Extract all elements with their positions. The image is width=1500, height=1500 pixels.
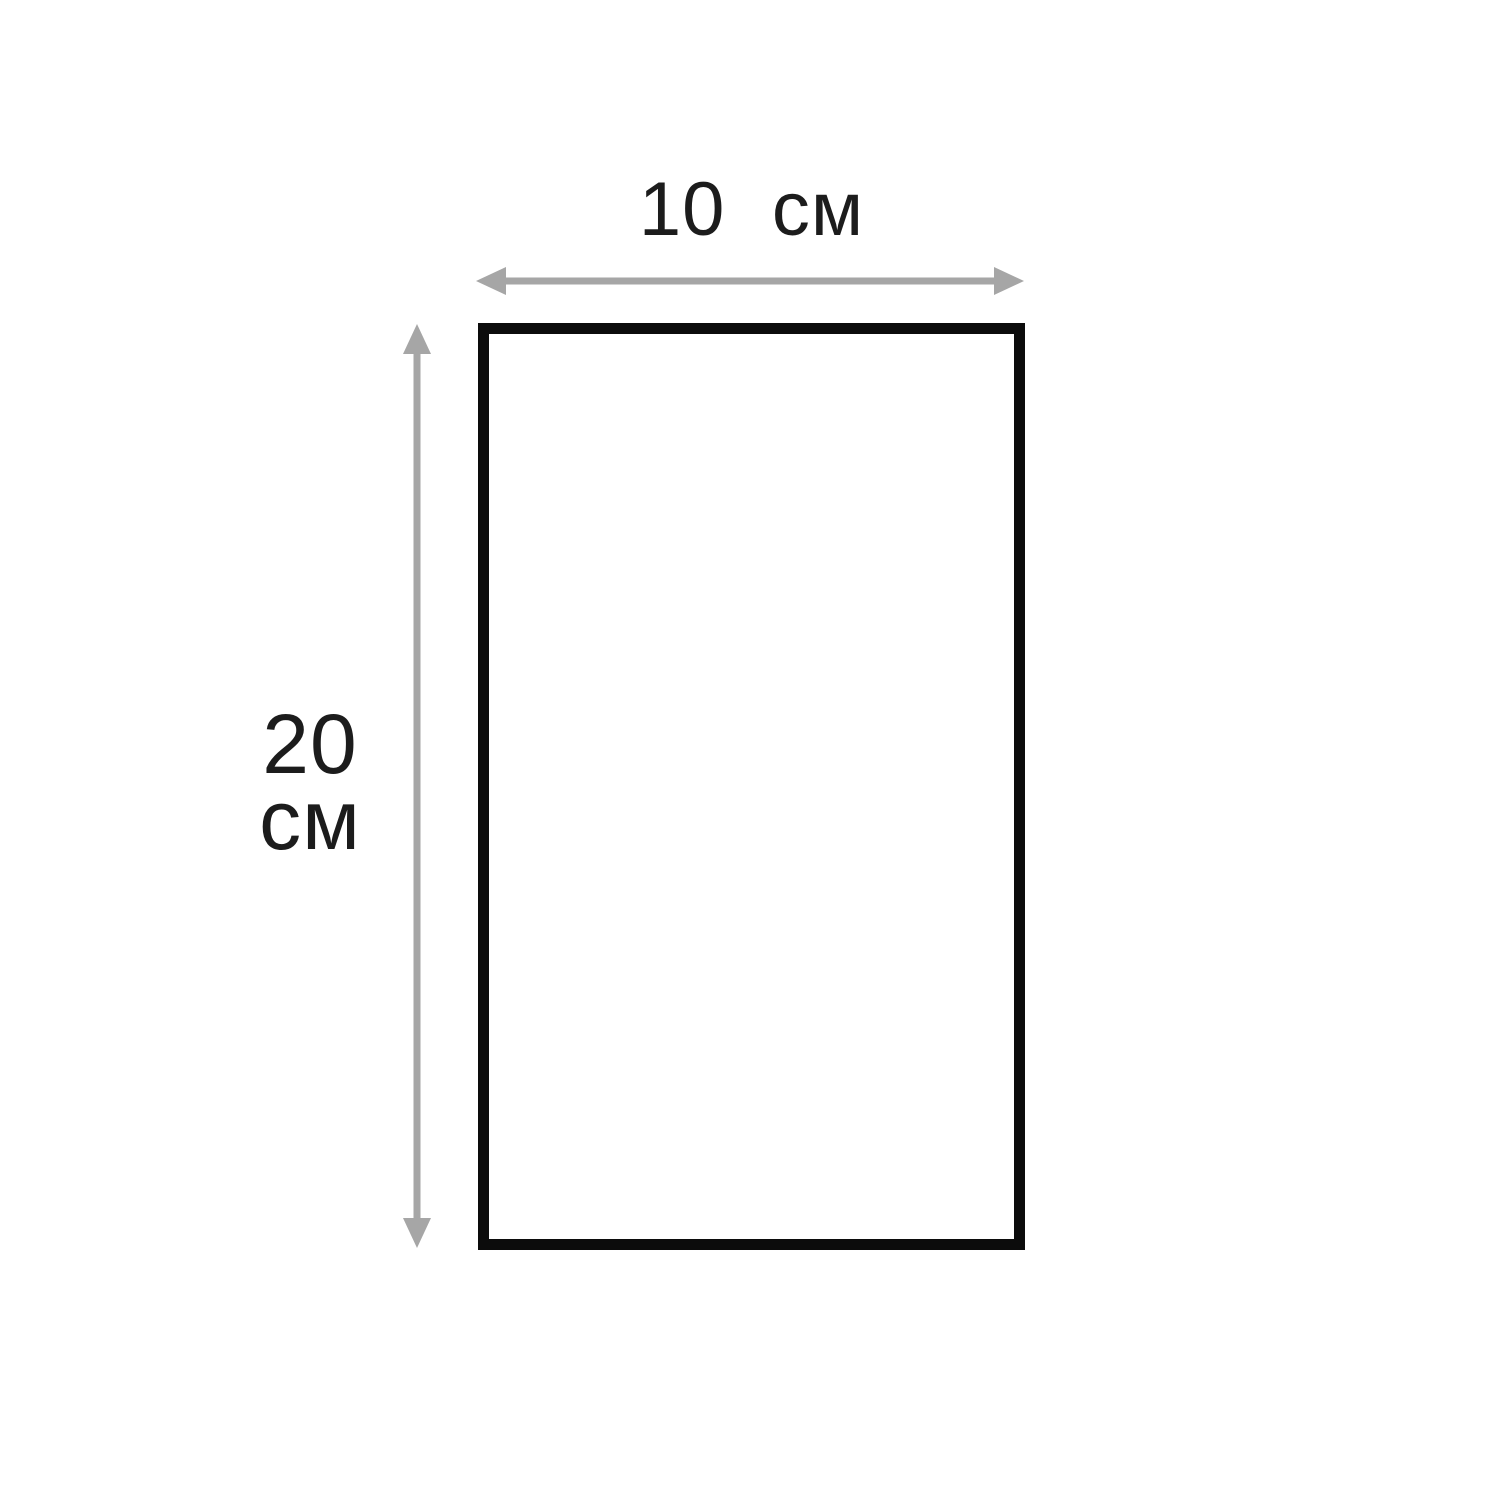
width-value: 10 [639,167,726,252]
width-double-arrow-icon [476,267,1024,295]
rectangle-shape [478,323,1025,1250]
height-label: 20 см [200,706,420,858]
width-unit: см [772,167,864,252]
height-value: 20 [200,706,420,782]
height-unit: см [200,782,420,858]
width-label: 10 см [478,170,1025,250]
diagram-canvas: 10 см 20 см [0,0,1500,1500]
